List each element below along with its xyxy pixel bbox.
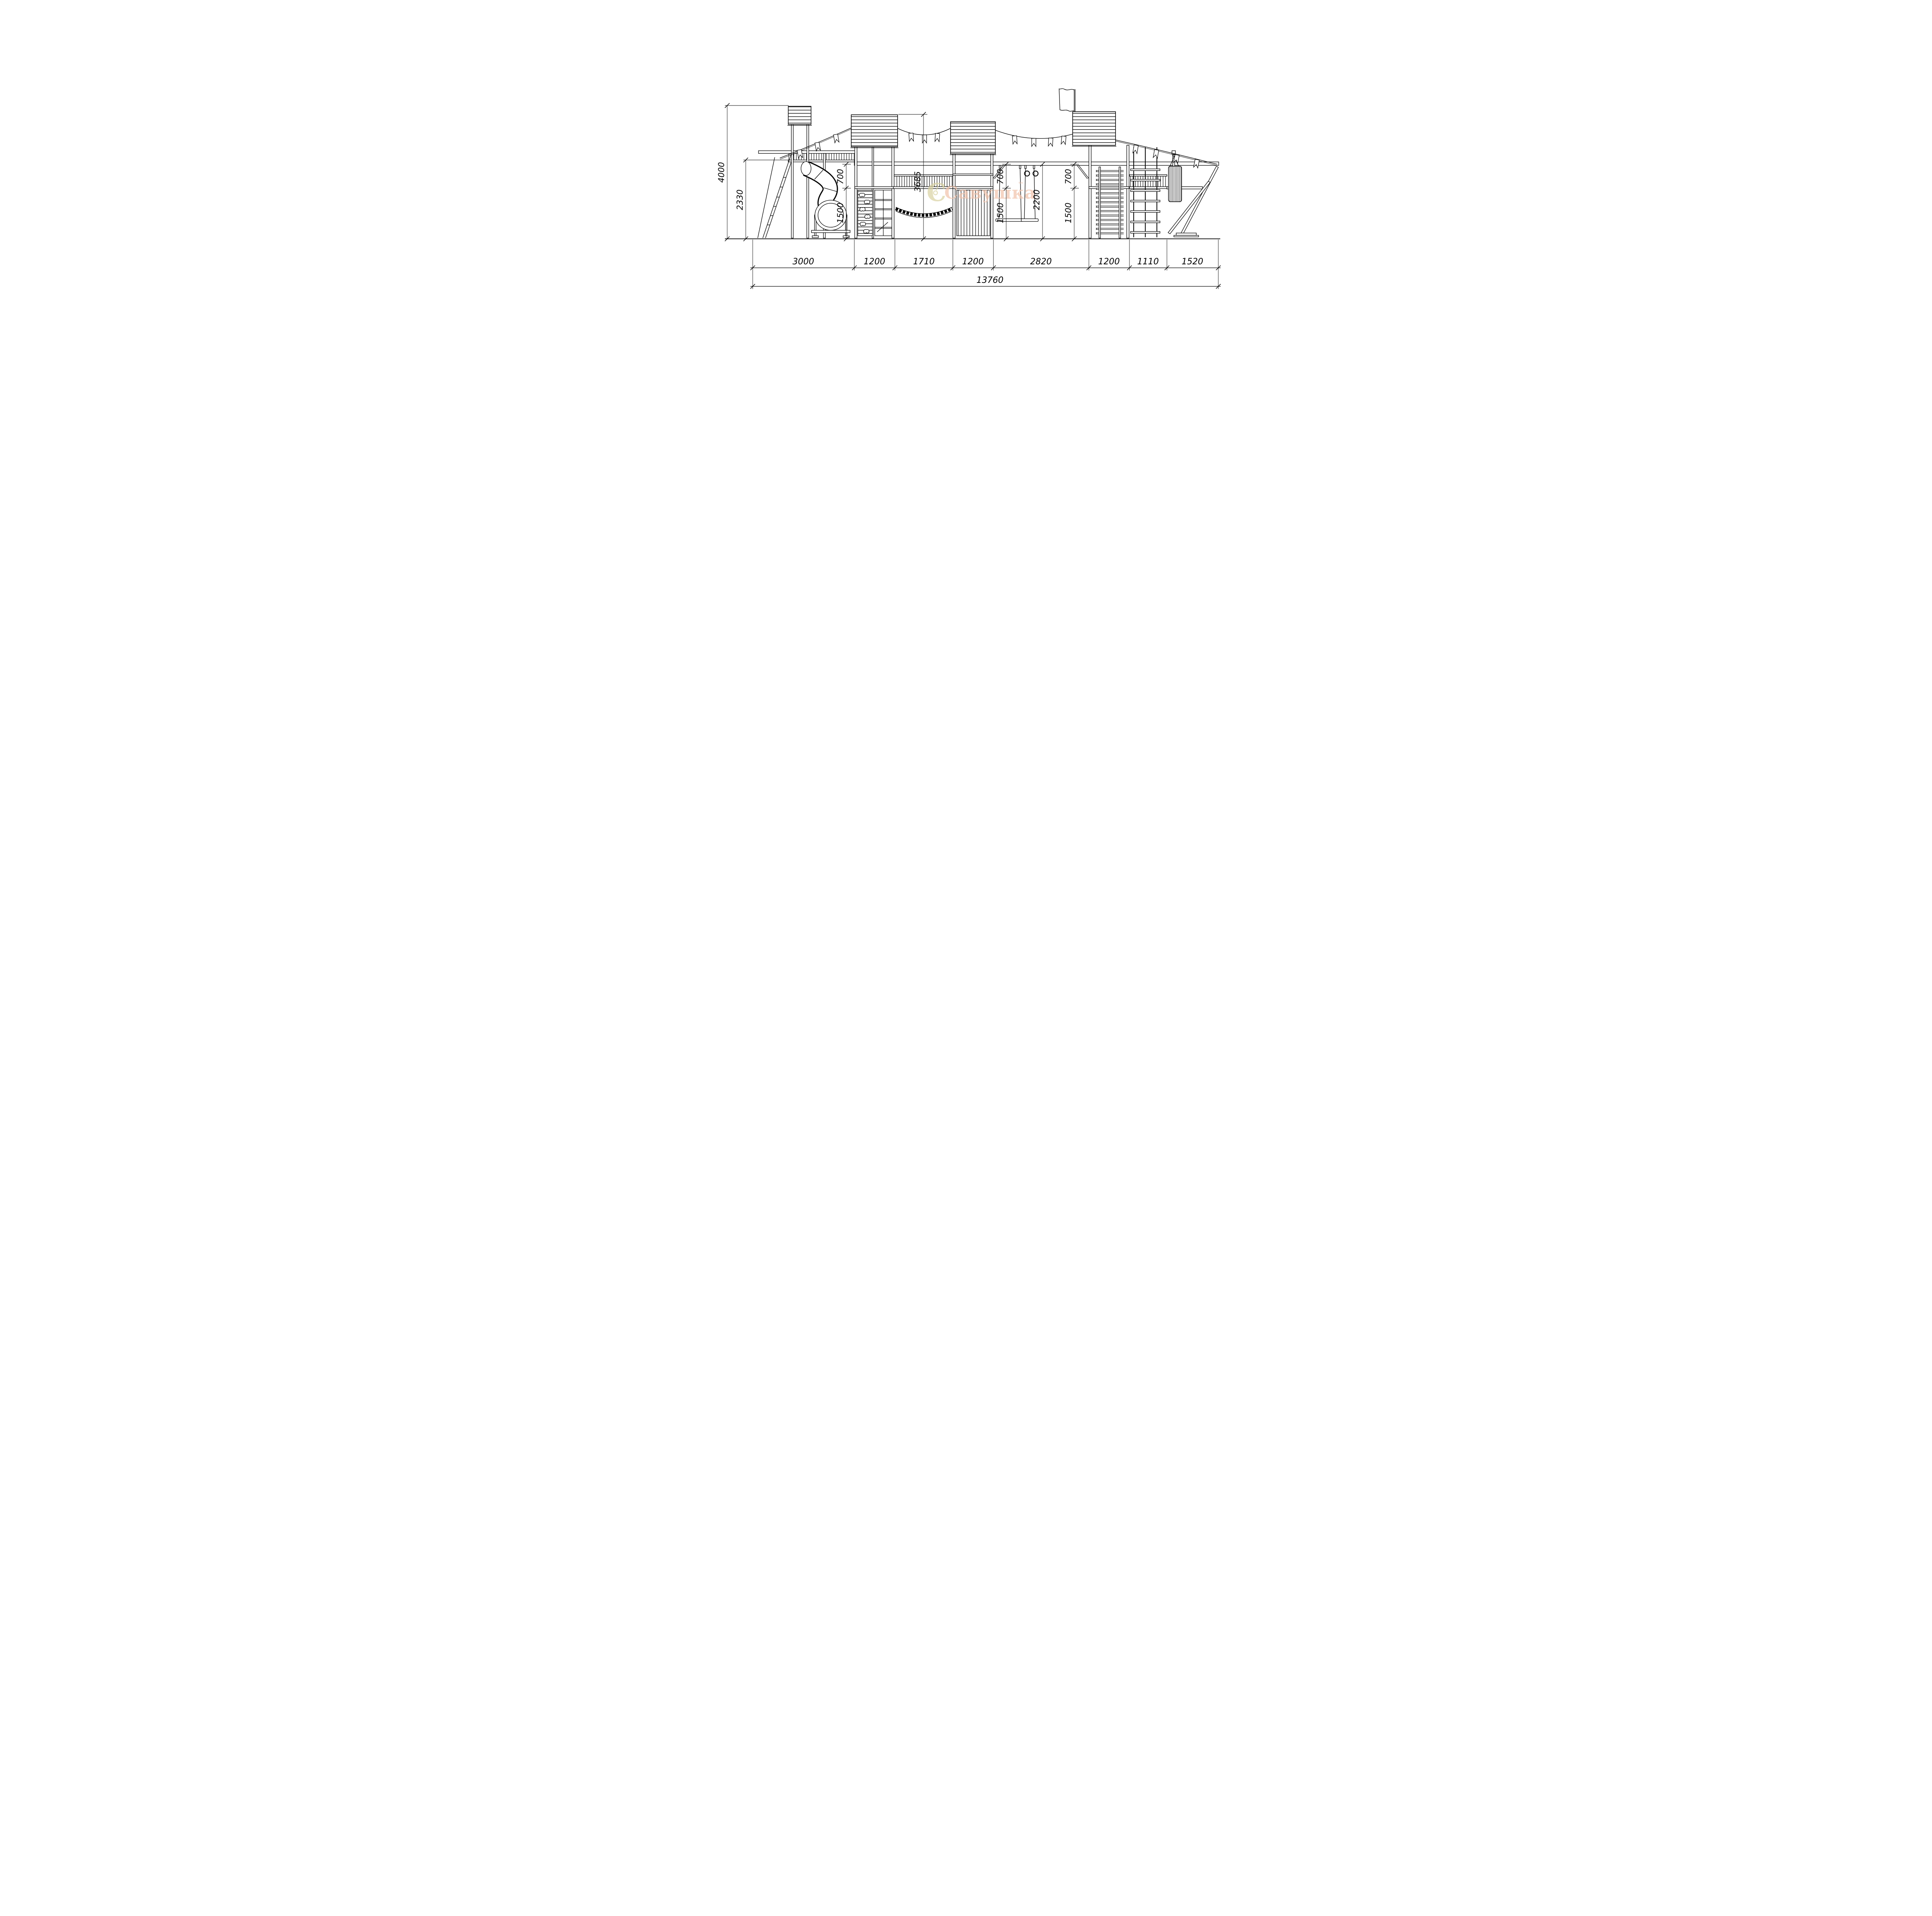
dim-1520: 1520: [1182, 257, 1203, 267]
section-net: [1129, 147, 1167, 237]
pennant-string-2: [898, 128, 951, 143]
tower4-stairs: [1096, 167, 1124, 238]
tower4-roof: [1072, 112, 1116, 146]
pennant-icon: [1032, 138, 1036, 146]
gym-rings: [1025, 171, 1038, 176]
dim-700-c: 700: [1064, 169, 1073, 184]
walkway-deck: [788, 160, 854, 162]
pennant-icon: [1061, 136, 1066, 145]
dim-overall-height: 4000: [717, 162, 726, 182]
climbing-wall: [858, 190, 872, 236]
pennant-icon: [909, 133, 913, 141]
watermark: С Савушка ™: [927, 178, 1036, 207]
tower1-post: [807, 124, 809, 238]
pennant-icon: [922, 135, 927, 143]
access-ladder: [758, 154, 794, 238]
tower3-handrail: [953, 174, 993, 175]
shelf-unit: [875, 190, 892, 236]
pennant-icon: [1133, 145, 1138, 153]
tower1-roof: [787, 106, 812, 126]
dim-700-b: 700: [996, 169, 1005, 184]
rope-bridge: [896, 207, 952, 218]
net-toprail: [1129, 175, 1167, 176]
pennant-icon: [815, 142, 820, 151]
climbing-net: [1131, 147, 1160, 237]
dim-1200-c: 1200: [1098, 257, 1120, 267]
pennant-icon: [935, 133, 940, 142]
flag: [1059, 88, 1075, 112]
bridge-toprail: [894, 175, 954, 176]
pennant-icon: [1012, 136, 1017, 144]
tower2-roof: [850, 115, 898, 148]
dim-platform-height: 2330: [735, 189, 745, 210]
dim-1500-b: 1500: [996, 202, 1005, 223]
watermark-tm: ™: [1018, 181, 1024, 188]
main-upper-beam: [854, 162, 1219, 165]
dim-3000: 3000: [793, 257, 814, 267]
dim-700-a: 700: [836, 169, 845, 184]
playground-elevation-drawing: С Савушка ™ 4000 2330 700 1500: [695, 0, 1237, 383]
pennant-icon: [1048, 138, 1053, 146]
tower2-post: [855, 147, 857, 238]
dim-3685: 3685: [913, 171, 922, 192]
net-deck-rail: [1129, 187, 1167, 189]
dim-2200: 2200: [1032, 189, 1041, 210]
pennant-string-3: [995, 130, 1073, 146]
tower4-post: [1089, 145, 1091, 238]
back-railing: [1130, 176, 1166, 187]
dim-1200-a: 1200: [864, 257, 885, 267]
dim-left: 4000 2330: [717, 103, 789, 241]
section-tower2: [850, 115, 898, 238]
tower2-deck: [855, 187, 894, 189]
tower2-post: [892, 147, 894, 238]
dim-1710: 1710: [913, 257, 935, 267]
tower1-post: [791, 124, 793, 238]
watermark-initial: С: [927, 178, 946, 207]
dim-total: 13760: [750, 276, 1221, 289]
drawing-page: С Савушка ™ 4000 2330 700 1500: [695, 0, 1237, 383]
dim-1110: 1110: [1137, 257, 1159, 267]
swing-seat: [1021, 219, 1038, 221]
slide-entrance-ring: [801, 162, 811, 175]
pennant-icon: [1153, 150, 1158, 158]
dim-1500-c: 1500: [1064, 202, 1073, 223]
dim-2820: 2820: [1030, 257, 1052, 267]
tower3-roof: [950, 122, 996, 155]
pennant-icon: [833, 134, 839, 143]
pennant-icon: [1194, 159, 1199, 168]
dim-1500-a: 1500: [836, 202, 845, 223]
tower4-post: [1127, 145, 1129, 238]
dim-13760: 13760: [976, 276, 1003, 285]
dim-1200-b: 1200: [962, 257, 984, 267]
